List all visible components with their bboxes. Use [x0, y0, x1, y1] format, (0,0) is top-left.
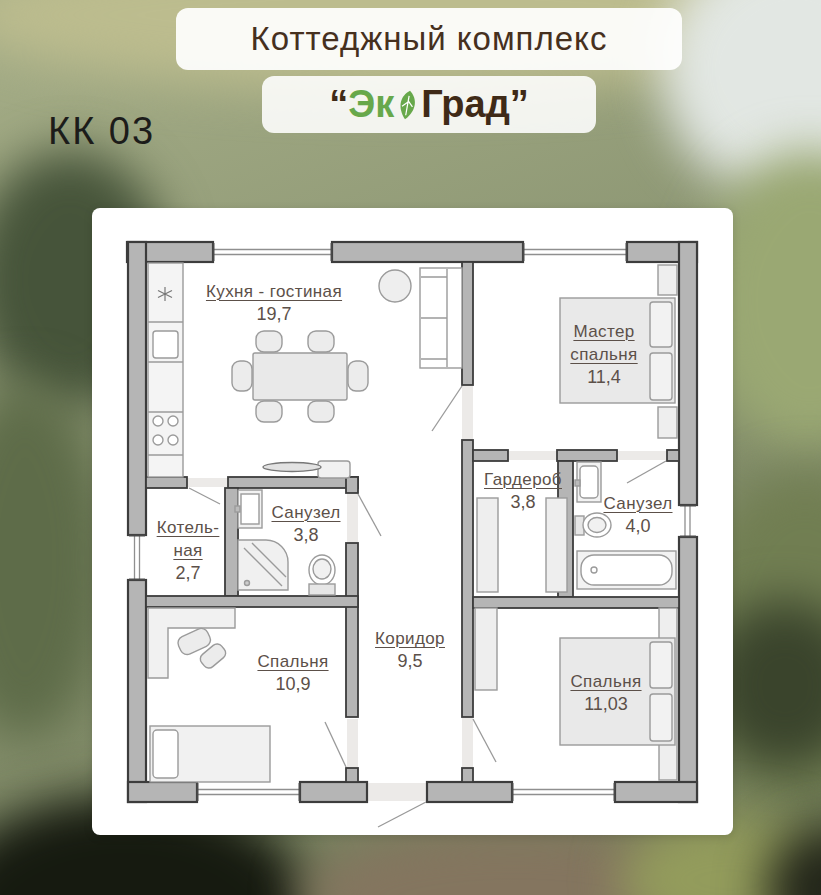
brand-grad: Град	[421, 83, 510, 126]
room-label-bathroom-master: Санузел 4,0	[603, 492, 672, 537]
room-label-bedroom-left: Спальня 10,9	[257, 650, 328, 695]
brand-eco: Эк	[348, 83, 394, 126]
room-label-wardrobe: Гардероб 3,8	[484, 468, 562, 513]
brand-pill: “ Эк Град ”	[262, 76, 596, 133]
room-label-kitchen-living: Кухня - гостиная 19,7	[206, 280, 342, 325]
room-label-boiler: Котель- ная 2,7	[157, 516, 220, 584]
plan-code: КК 03	[48, 110, 155, 153]
room-label-corridor: Коридор 9,5	[375, 627, 445, 672]
leaf-icon	[393, 87, 423, 123]
room-label-bathroom: Санузел 3,8	[271, 501, 340, 546]
brand-quote-close: ”	[510, 83, 529, 126]
room-label-master-bedroom: Мастер спальня 11,4	[570, 320, 637, 388]
brand-quote-open: “	[329, 83, 348, 126]
complex-title-pill: Коттеджный комплекс	[176, 8, 682, 70]
room-label-bedroom-right: Спальня 11,03	[570, 670, 641, 715]
complex-title: Коттеджный комплекс	[251, 20, 608, 58]
